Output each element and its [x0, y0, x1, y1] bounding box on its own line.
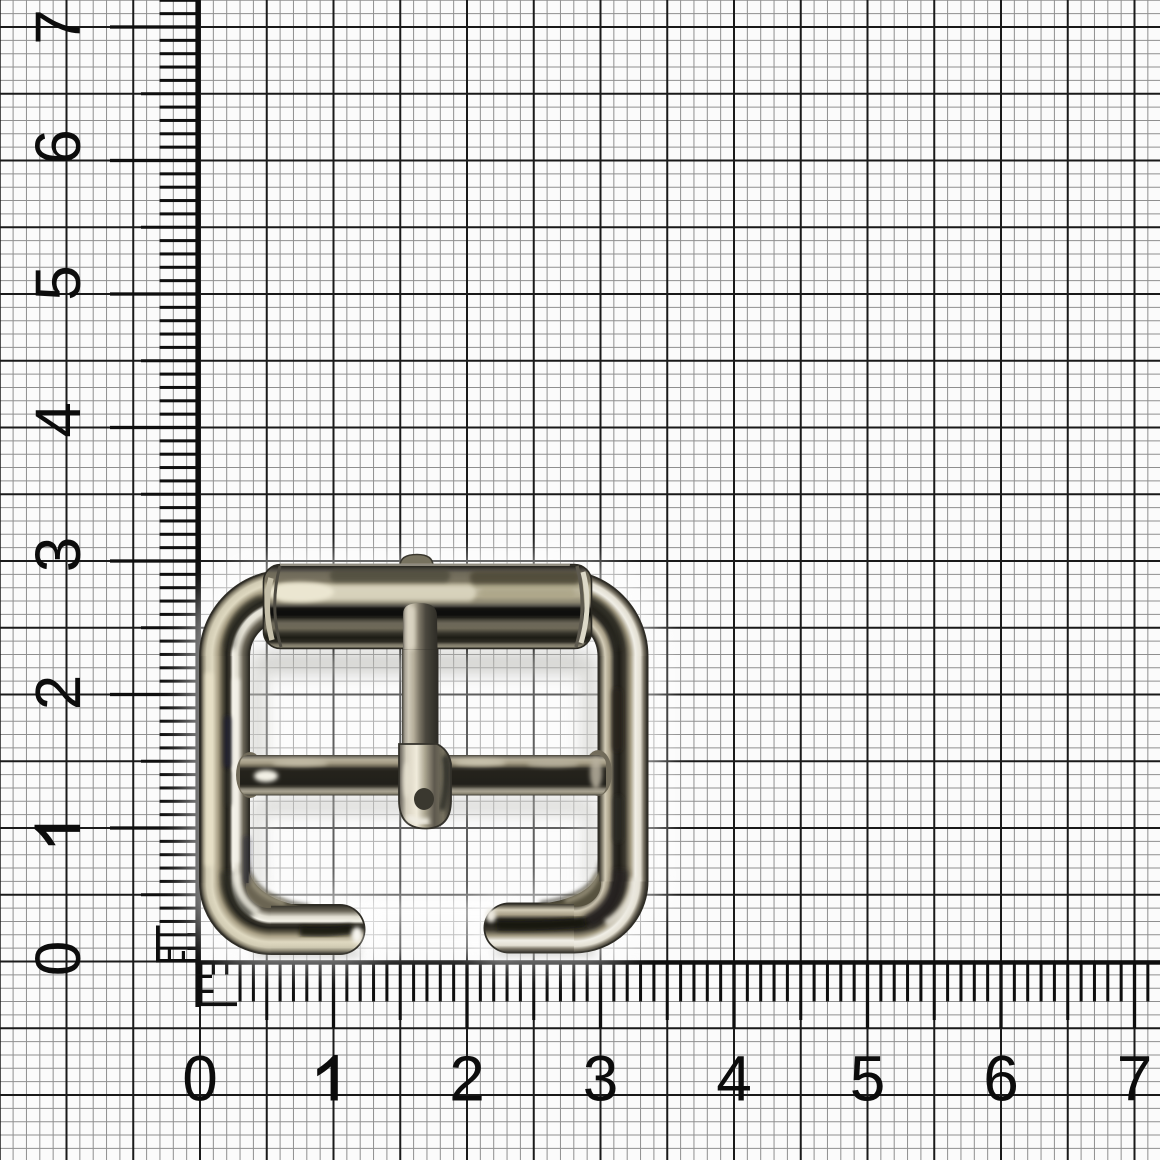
svg-text:4: 4 — [716, 1043, 752, 1115]
svg-text:4: 4 — [22, 402, 94, 438]
svg-text:3: 3 — [22, 537, 94, 573]
svg-text:6: 6 — [983, 1043, 1019, 1115]
svg-text:0: 0 — [182, 1043, 218, 1115]
svg-text:0: 0 — [22, 941, 94, 977]
svg-text:7: 7 — [22, 9, 94, 45]
svg-text:5: 5 — [22, 265, 94, 301]
svg-text:6: 6 — [22, 129, 94, 165]
svg-text:5: 5 — [850, 1043, 886, 1115]
svg-text:2: 2 — [449, 1043, 485, 1115]
svg-text:2: 2 — [22, 675, 94, 711]
svg-text:7: 7 — [1117, 1043, 1153, 1115]
svg-text:3: 3 — [583, 1043, 619, 1115]
